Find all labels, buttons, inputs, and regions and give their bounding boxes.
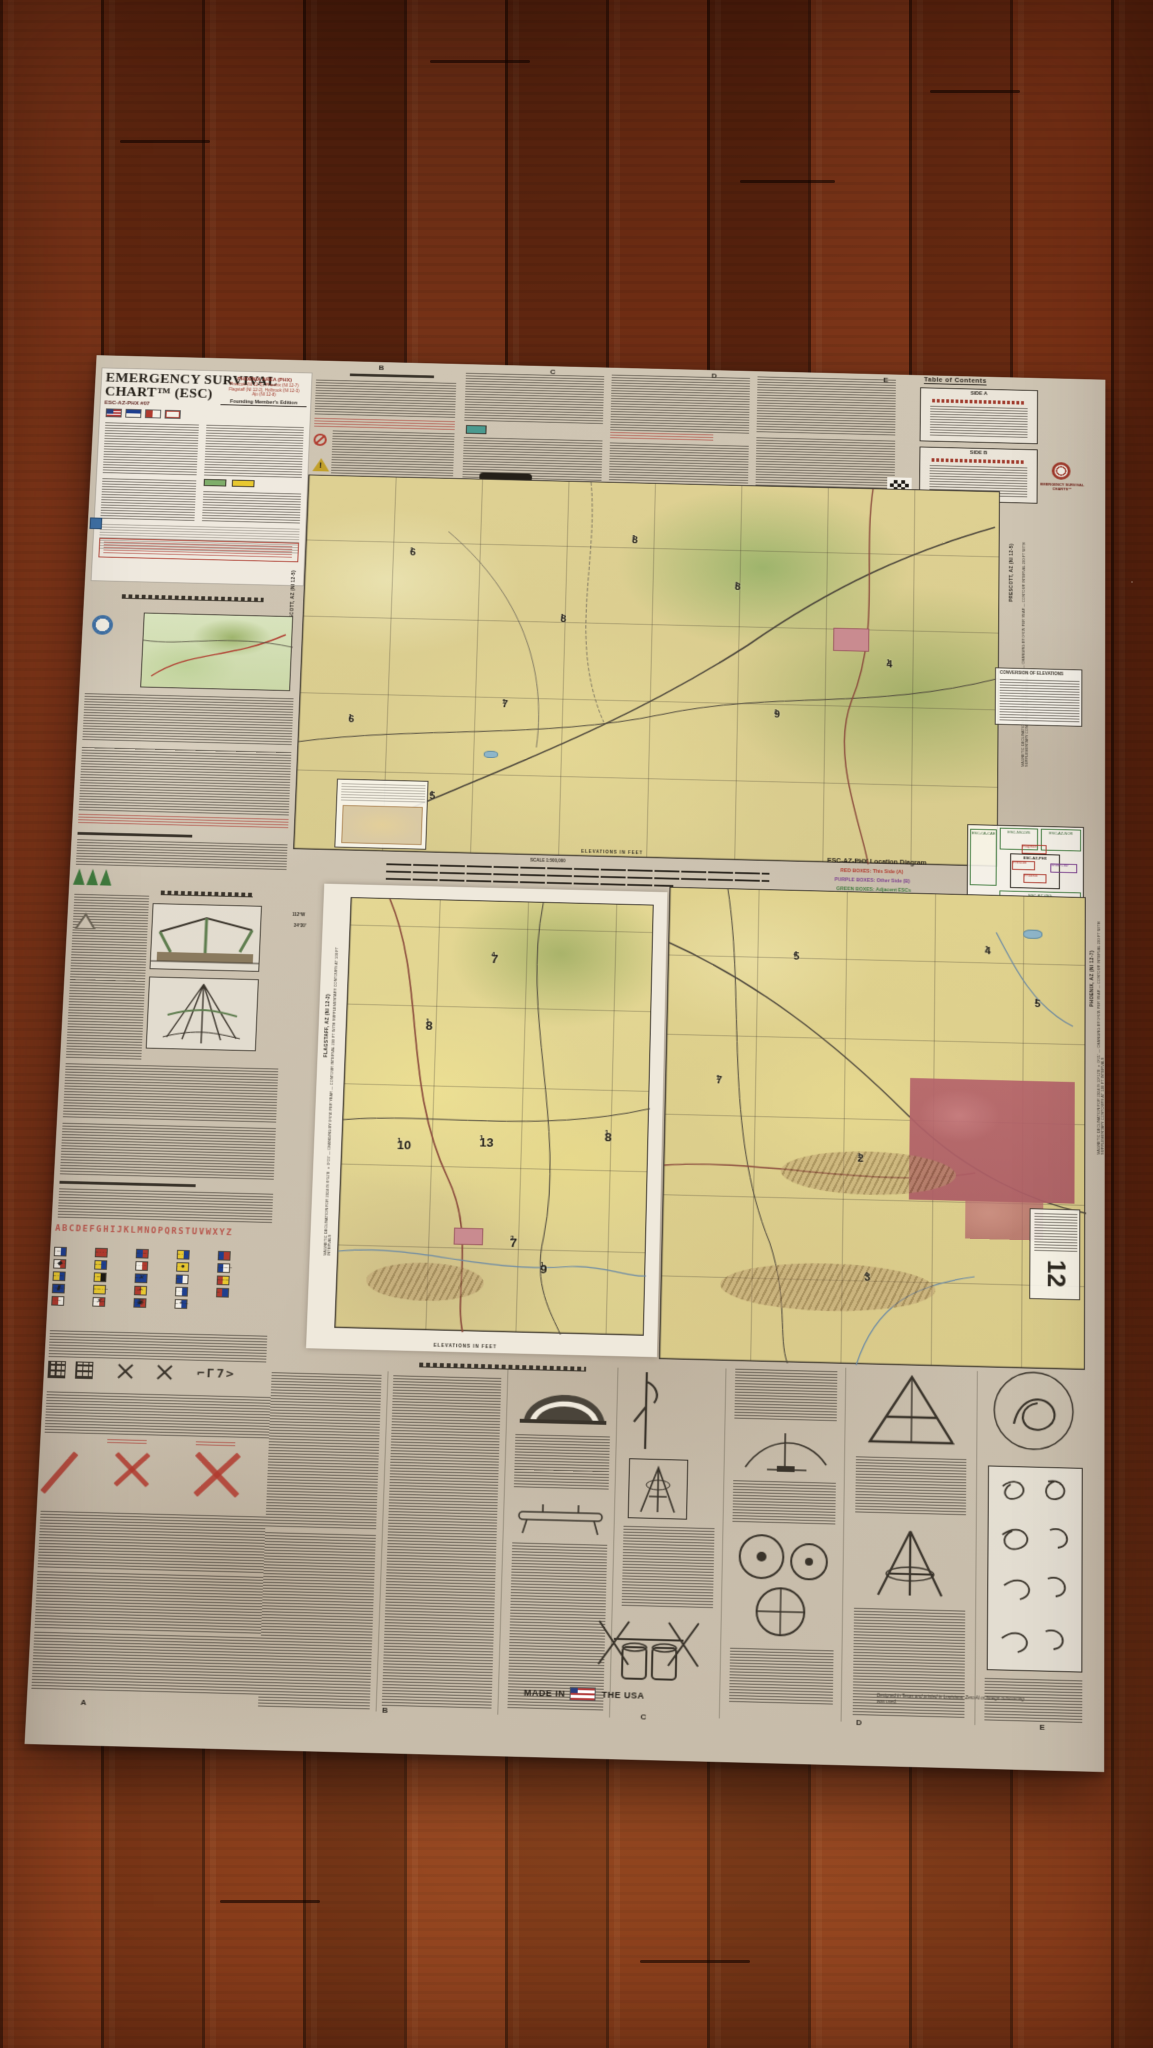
terrain-legend-chip (232, 480, 255, 488)
grid-signal-icon (75, 1361, 94, 1379)
sample-topo-map (140, 613, 293, 692)
x-signal-icon (116, 1362, 134, 1380)
toc-list (930, 406, 1028, 440)
survival-text (60, 1123, 276, 1181)
morse-code: ––· (94, 1261, 106, 1267)
signals-text (45, 1391, 271, 1439)
max-elevation-figures: 544121345171 (660, 888, 1085, 1369)
area-listing: PHOENIX AREA (PHX) Prescott (NI 12-5), P… (220, 376, 307, 407)
terrain-legend-chip (204, 479, 227, 487)
right-margin-block: PRESCOTT, AZ (NI 12-5) MAGNETIC DECLINAT… (1002, 508, 1083, 777)
signal-flag-cell: ––· (94, 1258, 136, 1271)
phoenix-sectional-map: 544121345171 12 (659, 887, 1086, 1370)
scale-label: SCALE 1:500,000 (530, 858, 565, 864)
pine-trees-icon (73, 868, 112, 885)
water-drums-diagram (618, 1639, 683, 1684)
instruction-text (382, 1375, 502, 1708)
max-elevation-figures: 618181617154819141 (294, 475, 999, 865)
morse-code: · (218, 1252, 221, 1258)
grid-letter: C (550, 368, 556, 376)
signal-flag-cell: ––·– (93, 1283, 135, 1296)
phoenix-margin-note: MAGNETIC DECLINATION FOR 2024 IS 10°12′E… (1097, 914, 1105, 1155)
survival-chart-sheet: EMERGENCY SURVIVAL CHART™ (ESC) ESC-AZ-P… (25, 355, 1106, 1772)
grid-letter: C (640, 1712, 646, 1721)
instruction-text (258, 1532, 376, 1709)
morse-code: ––·– (93, 1286, 109, 1292)
toc-side-a-box: SIDE A (920, 387, 1038, 444)
us-flag-icon (106, 408, 122, 417)
conversion-table (999, 679, 1079, 722)
morse-code: ···– (92, 1298, 105, 1304)
brand-logo: EMERGENCY SURVIVAL CHARTS™ (1038, 462, 1087, 504)
map-note-box: 12 (1029, 1208, 1080, 1300)
communications-text (58, 1188, 273, 1224)
ground-air-symbols-row: ⌐Γ7> (47, 1361, 274, 1392)
land-navigation-heading (122, 594, 264, 602)
morse-code: ––– (217, 1277, 230, 1283)
morse-code: –··– (175, 1301, 190, 1307)
grid-letter: E (1039, 1723, 1044, 1732)
morse-code: ·–– (133, 1299, 145, 1305)
trap-stick-diagram (625, 1368, 666, 1453)
ground-to-air-signals (45, 1441, 267, 1508)
signals-text (49, 1330, 268, 1362)
prescott-margin-label-right: PRESCOTT, AZ (NI 12-5) (1009, 543, 1015, 601)
floor-seam (220, 1900, 320, 1903)
signal-flag-cell: ◆··–· (53, 1257, 95, 1270)
floor-seam (930, 90, 1020, 93)
flag-icons-row (106, 408, 181, 419)
legend-text (100, 478, 196, 521)
flagstaff-margin-label: FLAGSTAFF, AZ (NI 12-2) (323, 994, 331, 1057)
x-signal-icon (155, 1363, 173, 1381)
conversion-of-elevations-box: CONVERSION OF ELEVATIONS (995, 667, 1083, 726)
toc-side-a-label: SIDE A (921, 390, 1037, 398)
communications-heading (59, 1181, 195, 1187)
prescott-red-box: Prescott (1012, 861, 1035, 871)
warning-note-box (98, 538, 299, 562)
cross-flag-icon (165, 410, 181, 419)
toc-heading-red (932, 399, 1026, 405)
teal-badge (466, 425, 487, 434)
legend-purple: PURPLE BOXES: Other Side (B) (835, 877, 910, 884)
signal-flag-cell: –·–· (136, 1247, 178, 1260)
legend-red: RED BOXES: This Side (A) (840, 868, 903, 875)
info-blue-icon (89, 517, 102, 529)
toc-title: Table of Contents (924, 377, 987, 385)
signal-flag-cell: ···· (135, 1259, 177, 1272)
log-bed-diagram (512, 1494, 608, 1539)
signal-flag-cell: ––– (217, 1274, 259, 1287)
section-heading (77, 832, 192, 838)
grid-letter: B (378, 364, 384, 372)
instruction-text (734, 1369, 837, 1423)
tripod-diagram (858, 1522, 962, 1603)
survival-text (76, 839, 288, 870)
floor-seam (740, 180, 835, 183)
state-flag-icon (125, 409, 141, 418)
morse-code: –·–· (136, 1250, 151, 1256)
signal-flag-cell: –·– (52, 1269, 94, 1282)
signal-flag-cell: ·––– (217, 1261, 259, 1274)
conversion-title: CONVERSION OF ELEVATIONS (1000, 670, 1064, 676)
morse-code: ···· (135, 1263, 147, 1269)
note-text (1034, 1213, 1077, 1252)
maritime-signal-flags: ·––···–·–·–···◆··–·––·····●···––––·–·–··… (51, 1245, 259, 1312)
survival-text (38, 1511, 266, 1573)
photo-scene: EMERGENCY SURVIVAL CHART™ (ESC) ESC-AZ-P… (0, 0, 1153, 2048)
signal-flag-cell: +·–· (134, 1284, 176, 1297)
legend-text (202, 491, 301, 523)
coord-longitude: 112°W (292, 912, 305, 917)
rope-coil-diagram (986, 1366, 1081, 1457)
instruction-text (514, 1434, 610, 1490)
morse-code: –·· (177, 1251, 187, 1257)
morse-code: ·––· (52, 1285, 67, 1291)
flagstaff-inset-map: 8174101131817291 (334, 897, 653, 1336)
esc-ca-cae-box: ESC-CA-CAE (970, 829, 997, 886)
compass-icon (92, 615, 114, 635)
signal-triangle-icon (75, 912, 97, 929)
signal-flag-cell: +–··– (174, 1297, 216, 1310)
ground-signal-slash (40, 1451, 78, 1493)
prescott-margin-note: MAGNETIC DECLINATION FOR 2024 IS 10°17′E… (1021, 517, 1051, 767)
survival-text (35, 1571, 264, 1634)
morse-code: ·––– (217, 1265, 233, 1271)
morse-code: ·– (54, 1248, 61, 1254)
note-number: 12 (1041, 1260, 1071, 1288)
instruction-text (622, 1526, 715, 1610)
floor-seam (430, 60, 530, 63)
bottom-strip: MADE IN THE USA Designed in Texas and pr… (257, 1353, 1084, 1742)
morse-code: ··– (51, 1297, 61, 1303)
signal-flag-cell: ●·· (176, 1260, 218, 1273)
prescott-sectional-map: 618181617154819141 ELEVATIONS IN FEET (293, 474, 1000, 866)
knots-panel (987, 1465, 1083, 1672)
survival-text (63, 1063, 279, 1124)
shade-shelter-illustration (150, 903, 262, 972)
morse-code: ··· (175, 1288, 184, 1294)
grid-letter: E (883, 376, 888, 384)
compass-logo-icon (1052, 462, 1071, 480)
elevations-label: ELEVATIONS IN FEET (434, 1343, 497, 1349)
pulley-wheels-diagram (730, 1527, 839, 1643)
grid-signal-icon (47, 1361, 66, 1379)
signal-flag-cell: ▮·––· (52, 1282, 94, 1295)
section-heading (419, 1363, 586, 1372)
us-flag-icon (570, 1687, 596, 1701)
no-entry-icon (313, 434, 327, 447)
morse-code: – (216, 1289, 220, 1295)
grid-letter: D (711, 372, 717, 380)
esc-az-nor-box: ESC-AZ-NOR (1041, 829, 1081, 852)
morse-code: ·–·· (94, 1274, 107, 1280)
warning-note-text (103, 542, 292, 560)
instruction-text (855, 1456, 966, 1517)
instruction-text (315, 380, 457, 420)
morse-code: –– (135, 1275, 144, 1281)
signal-flag-cell: ··– (51, 1294, 93, 1307)
a-frame-diagram (856, 1368, 967, 1451)
signal-flag-cell: –··· (95, 1246, 137, 1259)
signal-flag-cell: ·–·· (93, 1270, 135, 1283)
morse-code: ·–· (134, 1287, 144, 1293)
body-signal-glyphs: ⌐Γ7> (197, 1366, 236, 1381)
column-divider (719, 1368, 727, 1718)
coord-latitude: 34°30′ (294, 923, 307, 928)
signal-flag-cell: –·· (177, 1248, 219, 1261)
warning-triangle-icon (312, 458, 329, 472)
signal-flag-cell: ·– (54, 1245, 96, 1258)
phoenix-red-box: Phoenix (1023, 874, 1046, 884)
signal-caption (196, 1441, 236, 1448)
grid-letter: D (856, 1718, 862, 1727)
instruction-text (732, 1480, 835, 1525)
instruction-text (265, 1372, 381, 1529)
floor-seam (120, 140, 210, 143)
show-low-purple-box: Show Low (1050, 863, 1077, 873)
instruction-text (464, 373, 604, 425)
morse-code: –· (176, 1276, 183, 1282)
max-elevation-figures: 8174101131817291 (335, 898, 652, 1335)
signal-alphabet: ABCDEFGHIJKLMNOPQRSTUVWXYZ (55, 1224, 233, 1238)
signal-flag-cell: ··· (175, 1285, 217, 1298)
column-divider (974, 1371, 977, 1725)
highlighted-text (610, 432, 713, 441)
instruction-text (729, 1648, 833, 1706)
column-divider (841, 1368, 847, 1722)
bow-drill-diagram (737, 1424, 832, 1477)
location-diagram-title: ESC-AZ-PHX Location Diagram (827, 858, 927, 867)
signal-caption (107, 1439, 147, 1446)
toc-side-b-label: SIDE B (920, 449, 1036, 457)
brand-logo-text: EMERGENCY SURVIVAL CHARTS™ (1038, 483, 1087, 493)
morse-code: –··· (95, 1249, 108, 1255)
signal-flag-cell: ✕–– (134, 1272, 176, 1285)
signal-flag-icon (145, 409, 161, 418)
made-in-label: MADE IN (524, 1688, 566, 1699)
legend-text (204, 425, 304, 478)
grid-letter: A (80, 1698, 86, 1707)
dome-shelter-diagram (516, 1373, 612, 1429)
signal-flag-cell: – (216, 1286, 258, 1299)
highlighted-text (78, 814, 289, 830)
title-block: EMERGENCY SURVIVAL CHART™ (ESC) ESC-AZ-P… (91, 367, 313, 586)
flagstaff-red-box: Flagstaff (1022, 845, 1047, 855)
signal-flag-cell: ✕···– (92, 1295, 134, 1308)
paiute-deadfall-diagram (628, 1458, 689, 1519)
the-usa-label: THE USA (601, 1690, 644, 1701)
flagstaff-inset-sheet: FLAGSTAFF, AZ (NI 12-2) MAGNETIC DECLINA… (306, 884, 667, 1357)
navigation-text (82, 693, 293, 747)
morse-code: ··–· (53, 1260, 66, 1266)
grid-letter: B (382, 1706, 388, 1715)
signal-flag-cell: ▣·–– (133, 1296, 175, 1309)
instruction-text (610, 375, 750, 434)
signal-flag-cell: –· (176, 1273, 218, 1286)
phoenix-margin-label: PHOENIX, AZ (NI 12-7) (1089, 950, 1095, 1007)
morse-code: ·· (176, 1264, 182, 1270)
shelter-heading (161, 891, 253, 898)
morse-code: –·– (53, 1273, 65, 1279)
legend-text (103, 422, 199, 475)
floor-seam (640, 1960, 750, 1963)
survival-text (31, 1632, 261, 1697)
parachute-shelter-illustration (146, 976, 259, 1051)
highlighted-text (314, 418, 455, 430)
navigation-text (79, 747, 292, 815)
toc-heading-red (932, 458, 1026, 464)
signal-flag-cell: · (218, 1249, 259, 1262)
